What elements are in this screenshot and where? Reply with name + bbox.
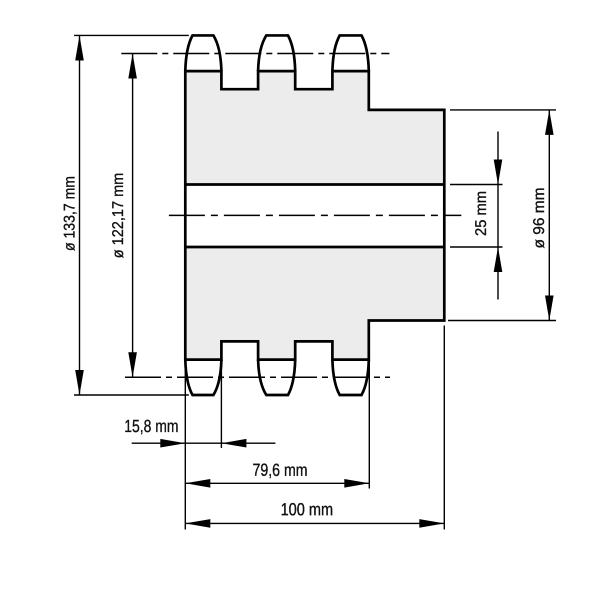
svg-text:100 mm: 100 mm xyxy=(281,499,334,519)
svg-text:25 mm: 25 mm xyxy=(473,191,490,236)
svg-text:ø 96 mm: ø 96 mm xyxy=(531,187,548,248)
svg-text:15,8 mm: 15,8 mm xyxy=(124,416,178,436)
svg-text:79,6 mm: 79,6 mm xyxy=(252,460,307,480)
svg-text:ø 133,7 mm: ø 133,7 mm xyxy=(61,176,78,251)
svg-text:ø 122,17 mm: ø 122,17 mm xyxy=(110,173,127,259)
